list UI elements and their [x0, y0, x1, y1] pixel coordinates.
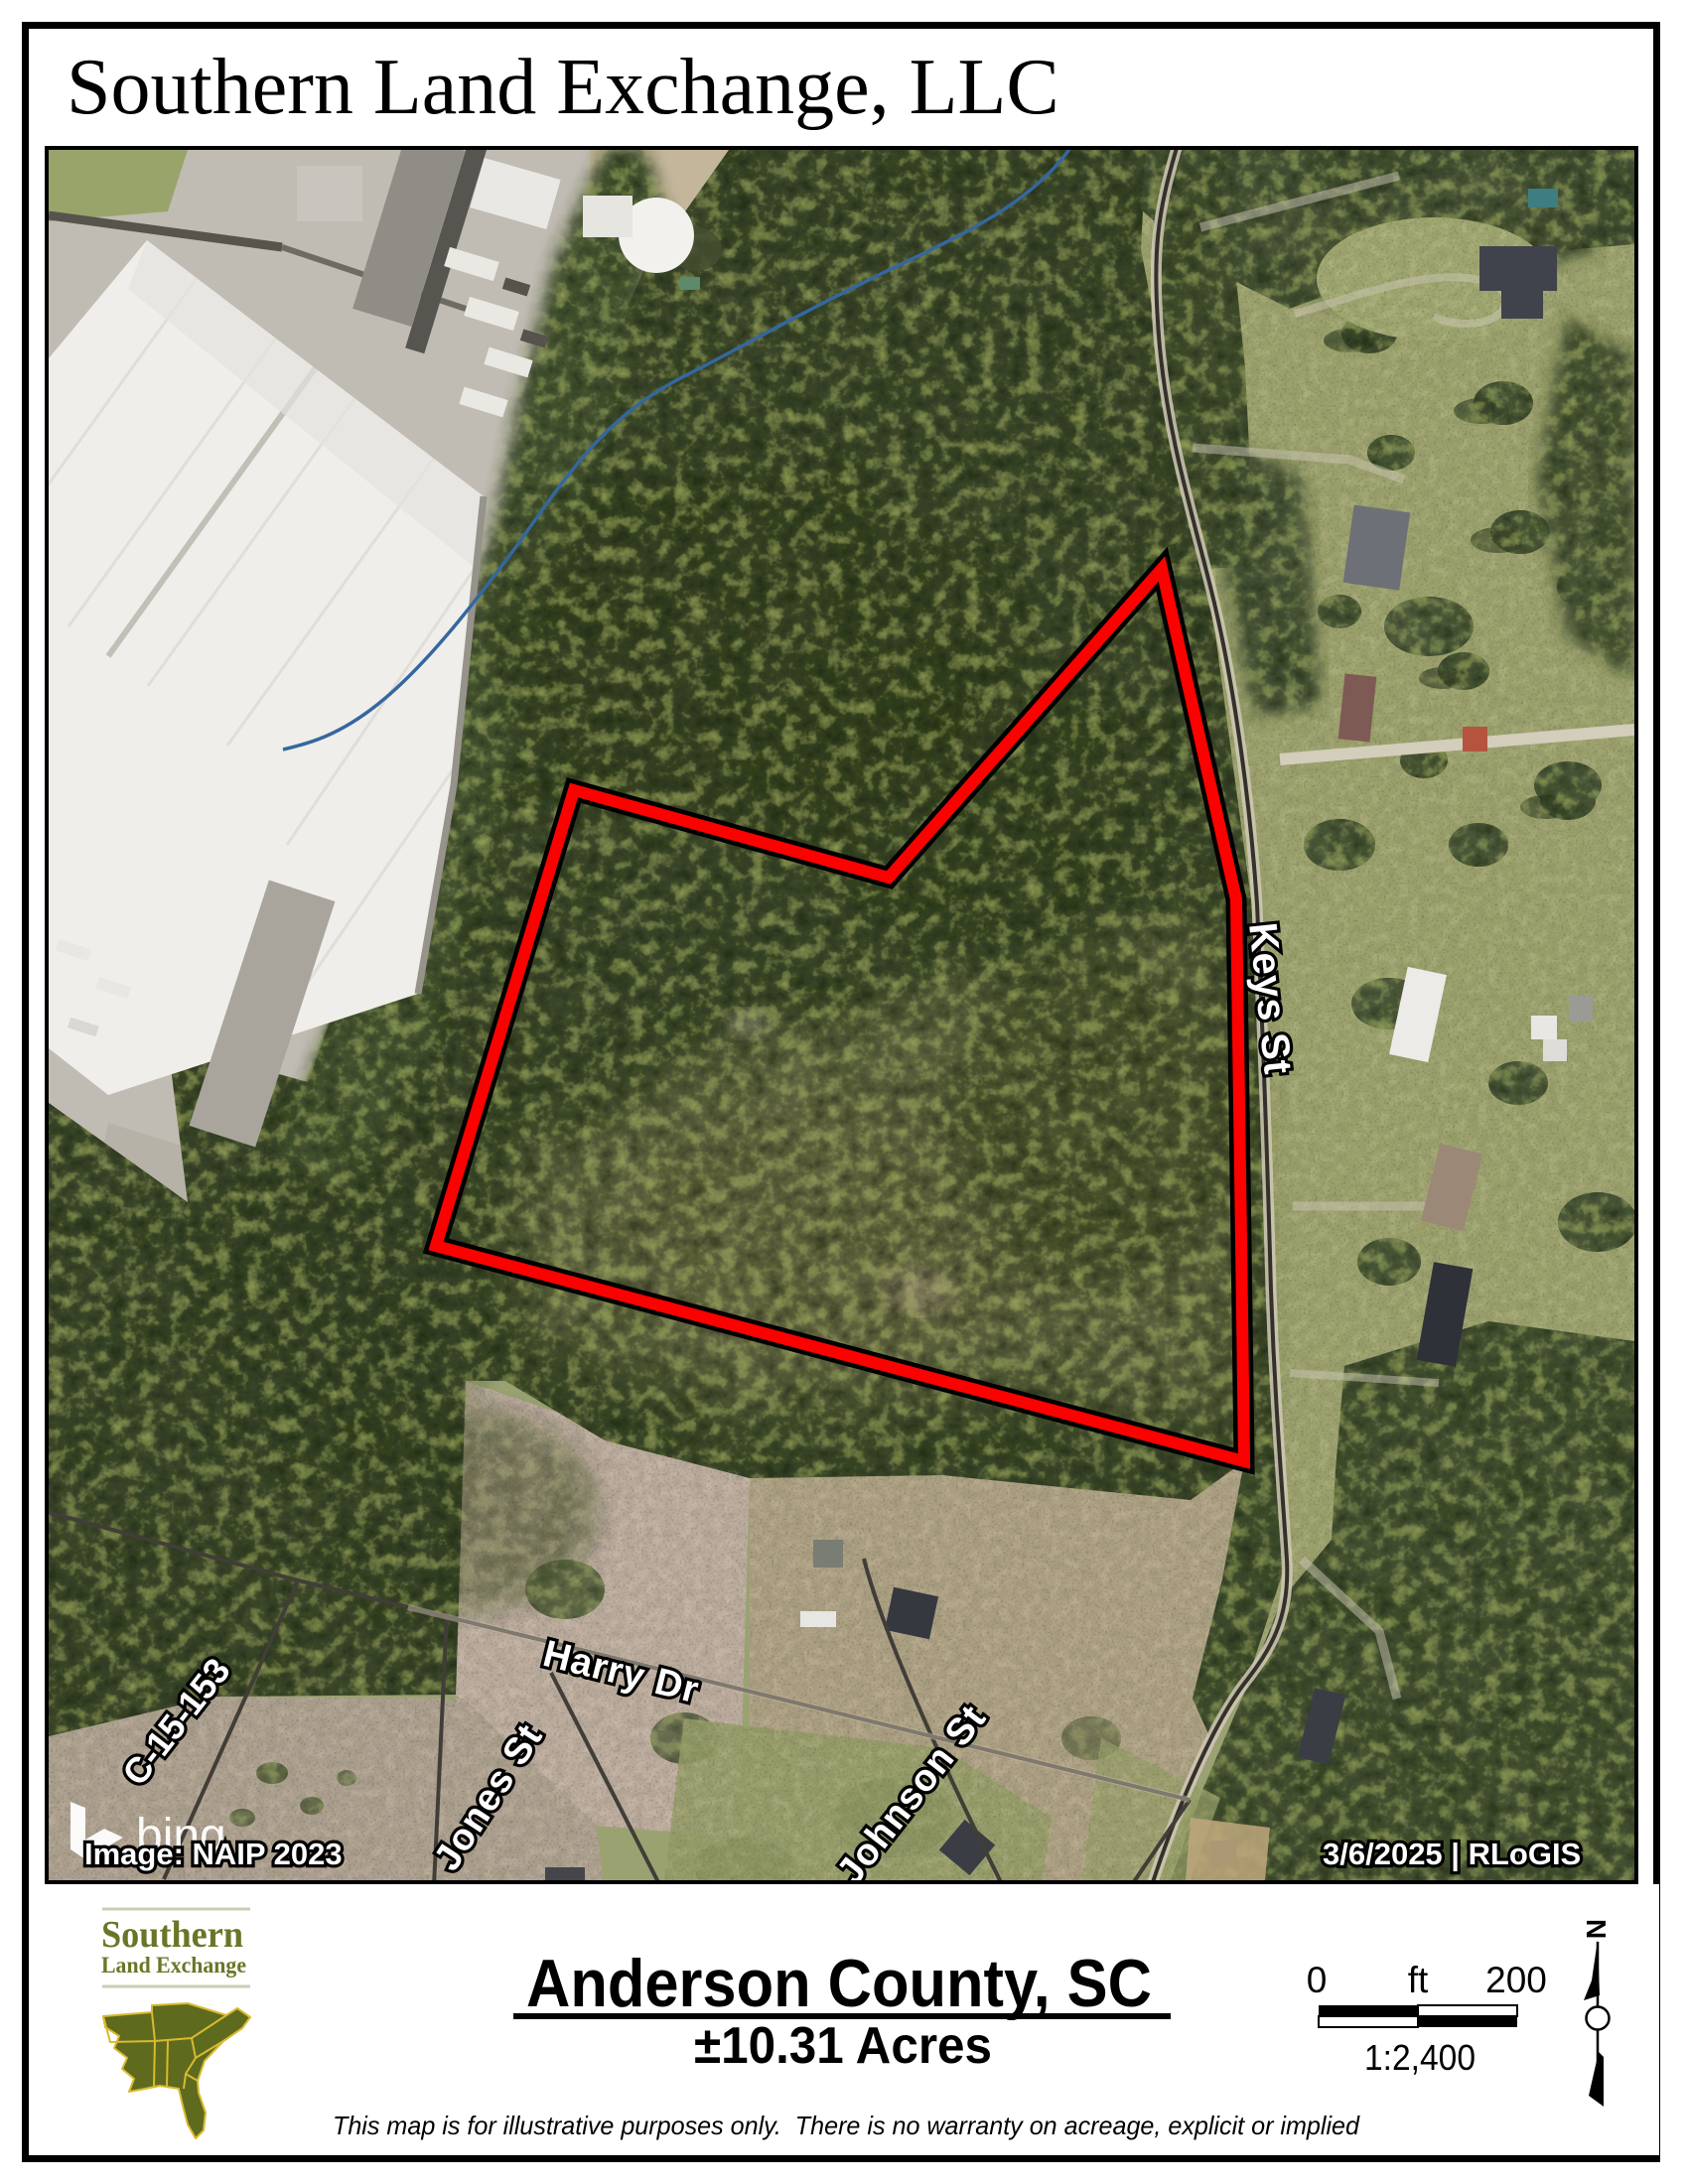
- svg-text:Land Exchange: Land Exchange: [101, 1953, 246, 1978]
- svg-text:1:2,400: 1:2,400: [1364, 2037, 1476, 2078]
- svg-text:Anderson County, SC: Anderson County, SC: [526, 1946, 1152, 2021]
- svg-text:±10.31 Acres: ±10.31 Acres: [694, 2017, 992, 2075]
- svg-text:3/6/2025 | RLoGIS: 3/6/2025 | RLoGIS: [1323, 1837, 1581, 1871]
- svg-text:Southern: Southern: [101, 1914, 243, 1956]
- svg-text:N: N: [1581, 1919, 1612, 1939]
- svg-text:Image: NAIP 2023: Image: NAIP 2023: [84, 1837, 343, 1871]
- svg-text:ft: ft: [1408, 1960, 1429, 2000]
- svg-text:0: 0: [1307, 1960, 1328, 2000]
- svg-text:200: 200: [1485, 1960, 1547, 2000]
- svg-text:This map is for illustrative p: This map is for illustrative purposes on…: [333, 2111, 1360, 2140]
